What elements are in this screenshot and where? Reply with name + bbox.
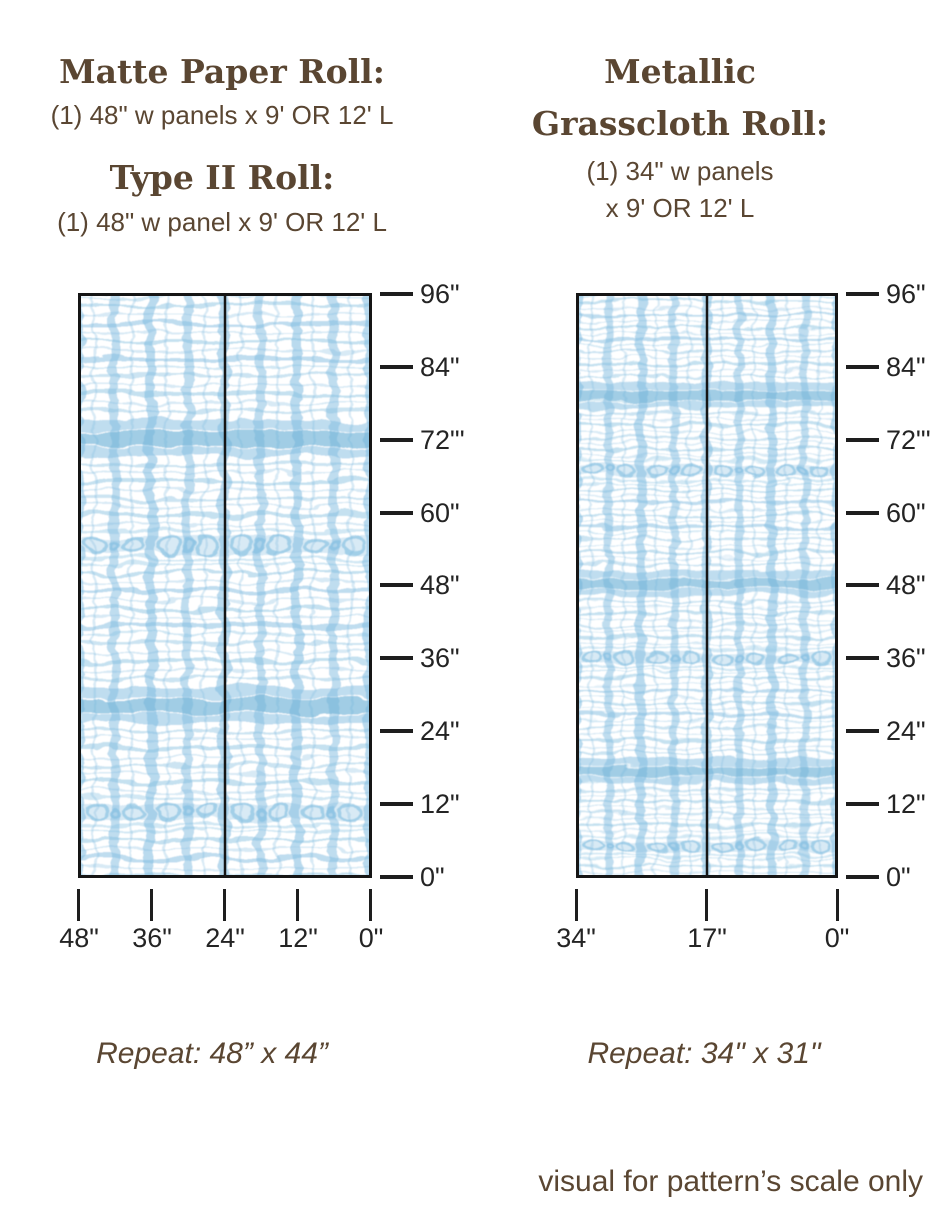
- left-repeat-size-label: Repeat: 48” x 44”: [32, 1036, 392, 1072]
- ruler-tick: [380, 438, 413, 442]
- ruler-tick: [296, 889, 299, 921]
- ruler-label: 0": [321, 922, 421, 954]
- metallic-grasscloth-roll-spec-line2: x 9' OR 12' L: [460, 192, 900, 224]
- ruler-tick: [380, 292, 413, 296]
- metallic-grasscloth-roll-title-line1: Metallic: [460, 52, 900, 92]
- metallic-grasscloth-panel-diagram: [576, 293, 838, 878]
- ruler-tick: [836, 889, 839, 921]
- wallpaper-roll-spec-sheet: Matte Paper Roll: (1) 48" w panels x 9' …: [0, 0, 938, 1219]
- type-ii-roll-spec: (1) 48" w panel x 9' OR 12' L: [2, 206, 442, 238]
- ruler-label: 0": [886, 861, 911, 893]
- ruler-label: 84": [420, 351, 460, 383]
- ruler-label: 36": [886, 642, 926, 674]
- ruler-tick: [380, 875, 413, 879]
- ruler-tick: [77, 889, 80, 921]
- matte-paper-roll-title: Matte Paper Roll:: [2, 52, 442, 92]
- ruler-tick: [380, 802, 413, 806]
- ruler-label: 0": [420, 861, 445, 893]
- scale-disclaimer-note: visual for pattern’s scale only: [423, 1164, 923, 1200]
- ruler-label: 12": [420, 788, 460, 820]
- ruler-tick: [380, 365, 413, 369]
- ruler-tick: [705, 889, 708, 921]
- ruler-label: 72"': [420, 424, 465, 456]
- ruler-label: 34": [526, 922, 626, 954]
- ruler-tick: [223, 889, 226, 921]
- ruler-label: 84": [886, 351, 926, 383]
- ruler-label: 17": [657, 922, 757, 954]
- ruler-tick: [846, 438, 879, 442]
- ruler-label: 48": [420, 569, 460, 601]
- ruler-tick: [380, 583, 413, 587]
- ruler-tick: [150, 889, 153, 921]
- type-ii-roll-title: Type II Roll:: [2, 158, 442, 198]
- ruler-label: 0": [787, 922, 887, 954]
- ruler-tick: [846, 729, 879, 733]
- ruler-tick: [846, 656, 879, 660]
- matte-paper-roll-spec: (1) 48" w panels x 9' OR 12' L: [2, 99, 442, 131]
- metallic-grasscloth-roll-spec-line1: (1) 34" w panels: [460, 155, 900, 187]
- ruler-tick: [846, 292, 879, 296]
- ruler-tick: [846, 875, 879, 879]
- ruler-tick: [380, 511, 413, 515]
- matte-paper-panel-diagram: [78, 293, 372, 878]
- metallic-grasscloth-roll-title-line2: Grasscloth Roll:: [460, 104, 900, 144]
- ruler-label: 72"': [886, 424, 931, 456]
- ruler-label: 24": [886, 715, 926, 747]
- ruler-tick: [846, 583, 879, 587]
- ruler-label: 48": [886, 569, 926, 601]
- ruler-tick: [369, 889, 372, 921]
- ruler-label: 60": [420, 497, 460, 529]
- ruler-tick: [846, 802, 879, 806]
- ruler-label: 96": [886, 278, 926, 310]
- ruler-label: 36": [420, 642, 460, 674]
- ruler-label: 96": [420, 278, 460, 310]
- right-repeat-size-label: Repeat: 34" x 31": [524, 1036, 884, 1072]
- ruler-tick: [846, 511, 879, 515]
- ruler-tick: [846, 365, 879, 369]
- ruler-label: 60": [886, 497, 926, 529]
- ruler-tick: [380, 729, 413, 733]
- ruler-label: 12": [886, 788, 926, 820]
- ruler-tick: [380, 656, 413, 660]
- ruler-tick: [575, 889, 578, 921]
- ruler-label: 24": [420, 715, 460, 747]
